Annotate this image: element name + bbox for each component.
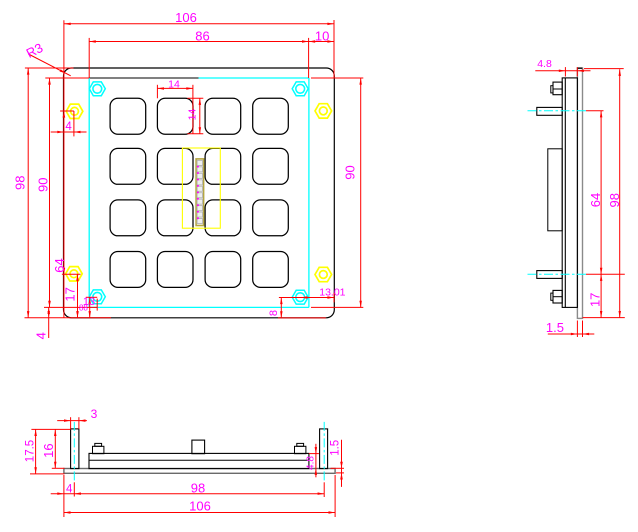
svg-text:14: 14 bbox=[168, 79, 180, 91]
svg-text:98: 98 bbox=[607, 193, 622, 207]
svg-text:98: 98 bbox=[191, 480, 205, 495]
svg-text:106: 106 bbox=[189, 498, 211, 513]
svg-text:17.5: 17.5 bbox=[25, 440, 37, 462]
svg-text:106: 106 bbox=[175, 10, 197, 25]
svg-text:4.8: 4.8 bbox=[306, 456, 317, 470]
svg-text:1.5: 1.5 bbox=[546, 320, 564, 335]
svg-text:4: 4 bbox=[65, 121, 72, 133]
svg-text:8: 8 bbox=[268, 310, 280, 316]
svg-text:90: 90 bbox=[36, 178, 51, 192]
svg-text:4.8: 4.8 bbox=[537, 58, 552, 70]
svg-text:64: 64 bbox=[588, 193, 603, 207]
svg-text:4: 4 bbox=[66, 483, 73, 495]
svg-text:14: 14 bbox=[186, 109, 198, 121]
svg-text:90: 90 bbox=[342, 165, 357, 179]
svg-text:64: 64 bbox=[52, 258, 67, 272]
svg-text:10: 10 bbox=[315, 29, 329, 44]
svg-text:16: 16 bbox=[41, 443, 56, 457]
svg-text:3: 3 bbox=[91, 407, 98, 421]
svg-text:98: 98 bbox=[13, 175, 28, 189]
svg-text:4: 4 bbox=[34, 332, 49, 339]
svg-text:1.5: 1.5 bbox=[329, 440, 341, 456]
svg-text:R3: R3 bbox=[24, 40, 46, 61]
svg-text:86: 86 bbox=[195, 29, 209, 44]
svg-text:88: 88 bbox=[79, 303, 88, 312]
svg-text:13.01: 13.01 bbox=[319, 286, 345, 298]
svg-text:17: 17 bbox=[587, 293, 602, 307]
svg-text:17: 17 bbox=[62, 287, 77, 301]
